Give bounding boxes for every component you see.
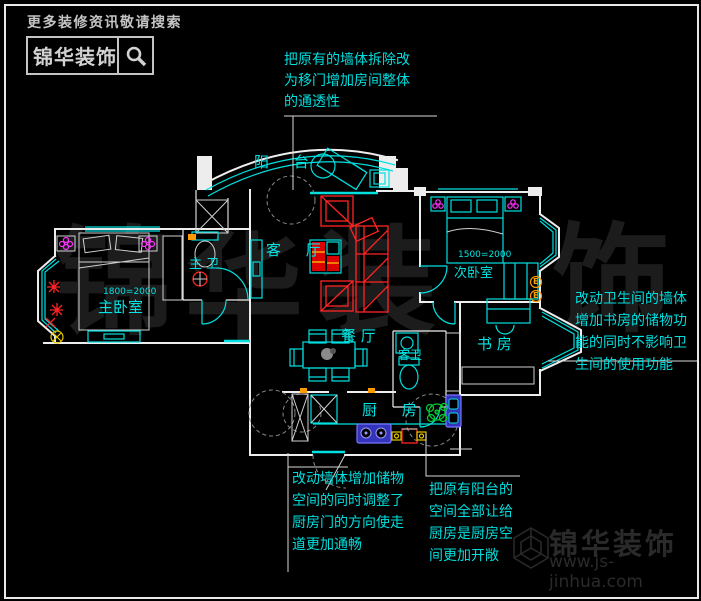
study-bookshelf: [462, 367, 534, 384]
flower-icon: [142, 238, 155, 250]
dining-chair: [309, 368, 326, 381]
room-label-master-bedroom: 主卧室: [98, 296, 143, 317]
brand-search-box[interactable]: 锦华装饰: [26, 36, 154, 75]
foyer-closet-hatch: [292, 394, 308, 441]
search-icon[interactable]: [119, 44, 152, 68]
study-furniture: [487, 299, 530, 334]
wall-lamp-icon: [392, 432, 401, 440]
annotation-bottom-left: 改动墙体增加储物 空间的同时调整了 厨房门的方向使走 道更加通畅: [292, 468, 422, 556]
study-storage-hatch: [446, 333, 460, 391]
room-label-kitchen: 厨 房: [362, 399, 427, 420]
room-label-living: 客 厅: [266, 239, 331, 260]
bed-dimension: 1500=2000: [458, 250, 511, 260]
flower-icon: [60, 238, 73, 250]
tv-cabinet: [251, 240, 262, 298]
annotation-right: 改动卫生间的墙体 增加书房的储物功 能的同时不影响卫 生间的使用功能: [575, 288, 699, 376]
dining-chair: [290, 349, 303, 366]
room-label-second-bedroom: 次卧室: [454, 262, 493, 281]
second-bedroom-furniture: [431, 197, 538, 299]
master-wardrobe: [163, 236, 182, 300]
room-label-dining: 餐 厅: [341, 325, 376, 346]
kitchen-cabinet: [311, 395, 337, 423]
search-hint-text: 更多装修资讯敬请搜索: [27, 12, 182, 32]
room-label-study: 书 房: [477, 333, 512, 354]
outlet-marker: [368, 388, 375, 393]
lounge-chair-icon: [311, 148, 367, 189]
bay-plant-icon: [46, 280, 63, 327]
room-label-guest-bath: 客卫: [398, 346, 422, 363]
floor-drain-icon: [193, 272, 207, 286]
appliance-box: [402, 429, 417, 443]
brand-logo-text: 锦华装饰: [28, 41, 117, 70]
flower-icon: [508, 200, 518, 208]
outlet-label: E: [533, 291, 538, 300]
flower-icon: [433, 200, 443, 208]
outlet-marker: [188, 234, 196, 240]
dining-chair: [332, 368, 349, 381]
stove-icon: [357, 424, 391, 443]
storage-hatches: [163, 200, 534, 441]
sink-icon: [446, 395, 461, 427]
dining-chair: [309, 330, 326, 343]
annotation-bottom-center: 把原有阳台的 空间全部让给 厨房是厨房空 间更加开敞: [429, 479, 529, 567]
shower-arc: [216, 268, 248, 299]
annotation-top: 把原有的墙体拆除改 为移门增加房间整体 的通透性: [284, 50, 434, 113]
sofa: [350, 218, 388, 312]
dining-chair: [355, 349, 367, 366]
room-label-balcony: 阳 台: [254, 151, 319, 172]
outlet-label: E: [533, 277, 538, 286]
room-label-master-bath: 主 卫: [189, 253, 219, 272]
plant-icon: [427, 404, 448, 422]
wall-lamp-icon: [417, 432, 426, 440]
tv-cabinet: [88, 331, 140, 342]
armchair: [321, 281, 353, 311]
outlet-marker: [300, 388, 307, 393]
switch-symbol: [51, 331, 63, 343]
bed-dimension: 1800=2000: [103, 287, 156, 297]
armchair: [321, 196, 353, 226]
